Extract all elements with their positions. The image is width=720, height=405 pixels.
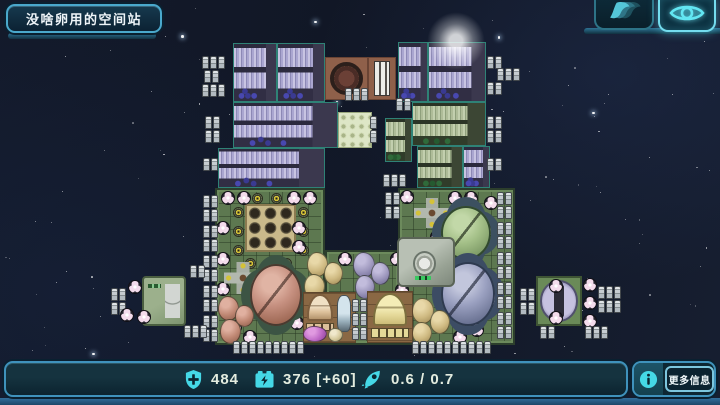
machine[interactable] [397,237,455,287]
dish[interactable] [250,264,302,326]
barrel [281,341,288,354]
barrel [505,236,512,249]
barrel [393,192,400,205]
tangrid[interactable] [245,204,296,252]
barrel [210,56,217,69]
barrel [111,288,118,301]
barrel [192,325,199,338]
barrel [210,84,217,97]
barrel [360,299,367,312]
barrel [184,325,191,338]
rack-purple[interactable] [398,42,428,102]
barrel [497,312,504,325]
trefoil[interactable] [237,191,251,205]
trefoil[interactable] [400,190,414,204]
barrels[interactable] [540,326,557,341]
pod[interactable] [430,310,450,334]
barrel [352,299,359,312]
barrels[interactable] [487,82,504,97]
stat-power: 376 [+60] [254,363,357,395]
trefoil[interactable] [338,252,352,266]
barrel [420,341,427,354]
barrels[interactable] [202,56,227,71]
trefoil[interactable] [549,279,563,293]
barrel [487,56,494,69]
barrel [497,266,504,279]
barrel [452,341,459,354]
barrels[interactable] [487,116,504,145]
ybtn[interactable] [233,245,244,256]
barrel [211,225,218,238]
title-substrip [8,33,156,39]
trefoil[interactable] [484,196,498,210]
barrel [497,206,504,219]
rack-green[interactable] [412,102,486,146]
barrel [540,326,547,339]
pod[interactable] [303,326,327,342]
trefoil[interactable] [583,296,597,310]
barrels[interactable] [203,158,220,173]
barrel [211,329,218,342]
trefoil[interactable] [128,280,142,294]
rack-purple[interactable] [233,43,277,102]
barrel [249,341,256,354]
thrust-value: 0.6 / 0.7 [391,371,454,388]
barrel [505,252,512,265]
barrels[interactable] [385,192,402,221]
barrel [520,302,527,315]
barrel [202,84,209,97]
barrel [233,341,240,354]
ybtn[interactable] [233,226,244,237]
power-value: 376 [+60] [283,371,357,388]
barrel [396,98,403,111]
speed-button[interactable] [594,0,654,30]
bottom-strip [0,398,720,405]
barrel [212,70,219,83]
barrel [476,341,483,354]
barrels[interactable] [383,174,408,189]
barrel [495,82,502,95]
trefoil[interactable] [583,278,597,292]
barrel [505,282,512,295]
rack-green[interactable] [385,118,412,162]
trefoil[interactable] [448,191,462,205]
ybtn[interactable] [298,207,309,218]
barrels[interactable] [497,222,514,251]
barrel [614,300,621,313]
barrel [360,313,367,326]
more-info-panel: 更多信息 [632,361,716,397]
barrels[interactable] [204,70,221,85]
barrel [505,192,512,205]
barrel [370,130,377,143]
barrel [497,326,504,339]
barrel [352,327,359,340]
barrel [203,225,210,238]
barrel [257,341,264,354]
barrel [404,98,411,111]
game-screen: 没啥卵用的空间站 [0,0,720,405]
barrel [399,174,406,187]
barrel [111,302,118,315]
trefoil[interactable] [292,221,306,235]
barrel [361,88,368,101]
barrel [211,315,218,328]
barrel [528,288,535,301]
barrel [487,116,494,129]
barrel [273,341,280,354]
barrel [528,302,535,315]
stat-thrust: 0.6 / 0.7 [360,363,454,395]
barrel [468,341,475,354]
barrel [205,116,212,129]
barrel [385,206,392,219]
barrel [203,299,210,312]
trefoil[interactable] [221,191,235,205]
space-station[interactable] [0,0,720,405]
barrel [211,209,218,222]
barrels[interactable] [396,98,413,113]
rack-purple[interactable] [218,148,325,188]
barrel [495,116,502,129]
barrel [297,341,304,354]
barrel [497,222,504,235]
barrels[interactable] [497,68,522,83]
rocket-icon [360,368,383,390]
barrel [593,326,600,339]
barrel [436,341,443,354]
barrel [484,341,491,354]
barrel [513,68,520,81]
barrel [598,286,605,299]
barrel [497,296,504,309]
barrels[interactable] [497,282,514,311]
barrel [203,195,210,208]
barrel [211,255,218,268]
barrel [352,313,359,326]
barrel [497,192,504,205]
trefoil[interactable] [292,240,306,254]
barrel [383,174,390,187]
barrel [345,88,352,101]
barrel [520,288,527,301]
barrel [203,209,210,222]
barrels[interactable] [205,116,222,145]
barrels[interactable] [233,341,306,356]
pod[interactable] [324,262,343,285]
more-info-button[interactable]: 更多信息 [665,366,714,392]
barrel [460,341,467,354]
barrel [497,252,504,265]
station-title: 没啥卵用的空间站 [26,9,142,28]
barrels[interactable] [202,84,227,99]
barrel [211,299,218,312]
barrel [203,285,210,298]
barrels[interactable] [520,288,537,317]
barrel [487,82,494,95]
barrel [205,130,212,143]
battery-bolt-icon [254,370,275,389]
barrel [211,239,218,252]
stat-shield: 484 [184,363,239,395]
barrel [428,341,435,354]
trefoil[interactable] [464,191,478,205]
barrels[interactable] [203,225,220,254]
barrels[interactable] [412,341,493,356]
trefoil[interactable] [137,310,151,324]
barrel [412,341,419,354]
dome[interactable] [371,293,409,339]
barrel [606,286,613,299]
barrels[interactable] [190,265,207,280]
barrel [203,239,210,252]
barrel [505,326,512,339]
trefoil[interactable] [303,191,317,205]
barrel [393,206,400,219]
barrels[interactable] [585,326,610,341]
barrel [218,56,225,69]
barrels[interactable] [203,285,220,314]
barrel [505,296,512,309]
info-button[interactable] [634,363,663,395]
chimney[interactable] [368,57,396,100]
barrel [585,326,592,339]
barrel [241,341,248,354]
barrel [497,282,504,295]
barrel [213,116,220,129]
barrel [487,158,494,171]
wings-icon [604,0,644,27]
shield-value: 484 [211,371,239,388]
barrels[interactable] [352,299,369,342]
trefoil[interactable] [287,191,301,205]
barrel [606,300,613,313]
barrel [601,326,608,339]
barrel [200,325,207,338]
rack-purple[interactable] [463,146,490,188]
ybtn[interactable] [271,193,282,204]
barrel [289,341,296,354]
glow[interactable] [427,12,485,70]
barrel [614,286,621,299]
barrel [211,269,218,282]
barrel [211,285,218,298]
barrel [505,68,512,81]
barrel [505,206,512,219]
barrel [119,288,126,301]
barrel [548,326,555,339]
barrel [497,236,504,249]
barrels[interactable] [345,88,370,103]
station-title-plate[interactable]: 没啥卵用的空间站 [6,4,162,33]
barrel [203,158,210,171]
barrels[interactable] [497,312,514,341]
barrels[interactable] [487,158,504,173]
rack-purple[interactable] [277,43,325,102]
barrel [505,266,512,279]
barrels[interactable] [497,252,514,281]
barrel [211,195,218,208]
trefoil[interactable] [549,311,563,325]
barrel [202,56,209,69]
shield-plus-icon [184,369,203,390]
barrel [204,70,211,83]
barrel [444,341,451,354]
barrel [265,341,272,354]
barrel [505,222,512,235]
ybtn[interactable] [233,207,244,218]
barrel [353,88,360,101]
barrel [211,158,218,171]
more-info-label: 更多信息 [669,372,711,387]
dotplate[interactable] [338,112,372,148]
barrel [198,265,205,278]
barrel [360,327,367,340]
barrel [213,130,220,143]
barrel [385,192,392,205]
barrel [487,130,494,143]
barrels[interactable] [203,195,220,224]
barrel [370,116,377,129]
eye-icon [669,1,705,28]
barrel [190,265,197,278]
barrel [505,312,512,325]
bottle[interactable] [337,295,351,332]
barrels[interactable] [497,192,514,221]
barrel [218,84,225,97]
trefoil[interactable] [120,308,134,322]
info-icon [639,370,658,389]
barrel [598,300,605,313]
pod[interactable] [328,328,343,342]
barrel [391,174,398,187]
barrels[interactable] [370,116,379,145]
barrel [495,130,502,143]
ybtn[interactable] [252,193,263,204]
barrel [497,68,504,81]
rack-purple[interactable] [233,102,338,148]
rack-green[interactable] [417,146,463,188]
barrels[interactable] [184,325,209,340]
barrel [495,158,502,171]
overview-button[interactable] [658,0,716,32]
status-bar: 484 376 [+60] 0.6 / 0.7 [4,361,628,397]
barrels[interactable] [598,286,623,315]
